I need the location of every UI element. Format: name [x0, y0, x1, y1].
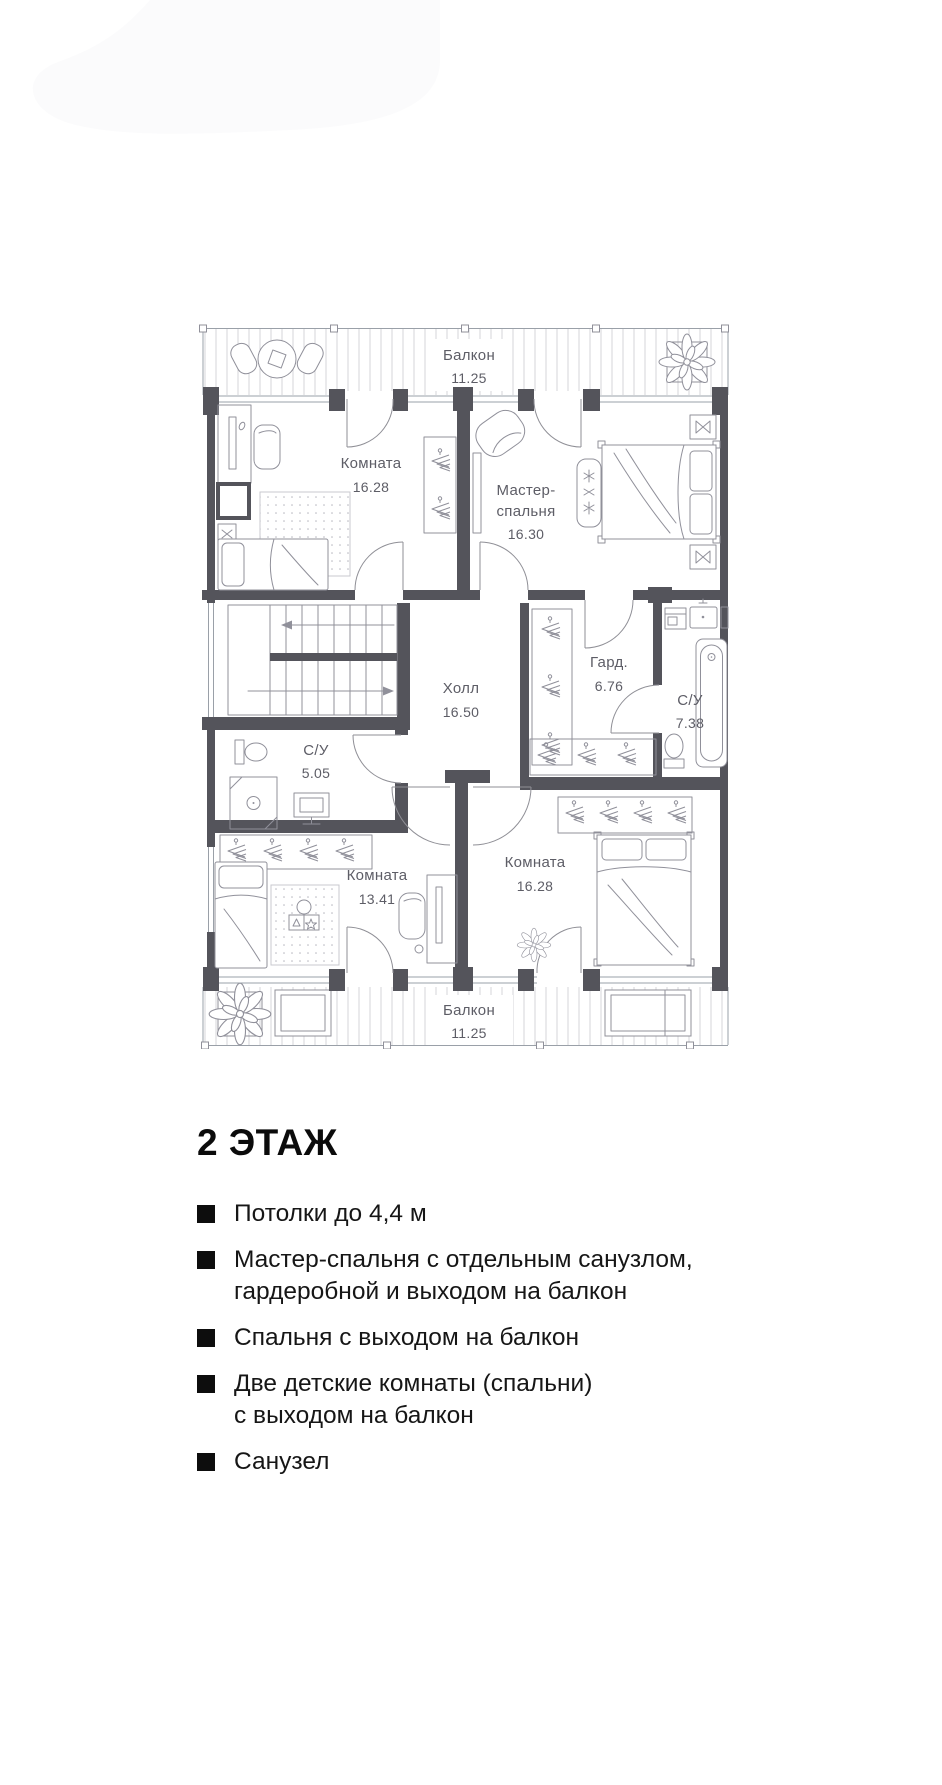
sink-icon: [294, 793, 329, 824]
room-top-left-label: Комната: [341, 455, 402, 472]
balcony-lounger-right: [605, 990, 691, 1036]
bullet-square: [197, 1329, 215, 1347]
wardrobe-label: Гард.: [590, 654, 628, 671]
bath-small-room: С/У 5.05: [230, 740, 330, 829]
closet-niche: [218, 484, 249, 518]
stairs: [228, 605, 397, 715]
room-bottom-left-furniture: Комната 13.41: [215, 835, 457, 968]
bed-icon: [594, 832, 694, 966]
washer-icon: [665, 608, 686, 629]
feature-item: Две детские комнаты (спальни)с выходом н…: [197, 1368, 717, 1432]
balcony-bottom: Балкон 11.25: [202, 983, 729, 1049]
room-top-left-area: 16.28: [353, 479, 390, 495]
floor-title: 2 ЭТАЖ: [197, 1122, 338, 1164]
bullet-square: [197, 1205, 215, 1223]
bath-master-room: С/У 7.38: [664, 599, 728, 768]
bullet-square: [197, 1251, 215, 1269]
feature-text: Потолки до 4,4 м: [234, 1198, 427, 1230]
master-label-1: Мастер-: [497, 482, 556, 499]
feature-text: Спальня с выходом на балкон: [234, 1322, 579, 1354]
bullet-square: [197, 1453, 215, 1471]
armchair-icon: [470, 404, 531, 462]
hall-labels: Холл 16.50: [443, 680, 480, 720]
feature-item: Мастер-спальня с отдельным санузлом,гард…: [197, 1244, 717, 1308]
balcony-top-label: Балкон: [443, 347, 495, 364]
plant-icon: [659, 334, 715, 390]
desk-icon: [399, 875, 457, 963]
master-bed-icon: [598, 441, 720, 543]
plant-icon: [517, 928, 551, 962]
master-furniture: Мастер- спальня 16.30: [470, 404, 720, 569]
bath-small-label: С/У: [303, 742, 329, 759]
room-bottom-left-label: Комната: [347, 867, 408, 884]
nightstand-icon: [690, 545, 716, 569]
master-label-2: спальня: [496, 503, 555, 520]
room-bottom-left-area: 13.41: [359, 891, 396, 907]
desk-icon: [218, 405, 280, 483]
rack: [558, 797, 692, 833]
page: Балкон 11.25: [0, 0, 942, 1785]
bath-master-area: 7.38: [676, 715, 704, 731]
feature-item: Спальня с выходом на балкон: [197, 1322, 717, 1354]
balcony-bottom-label: Балкон: [443, 1002, 495, 1019]
balcony-top: Балкон 11.25: [200, 325, 729, 395]
wardrobe-hangers: [424, 437, 456, 533]
wardrobe-area: 6.76: [595, 678, 623, 694]
bed-icon: [215, 862, 267, 968]
feature-item: Санузел: [197, 1446, 717, 1478]
room-bottom-right-furniture: Комната 16.28: [505, 797, 694, 966]
hall-label: Холл: [443, 680, 480, 697]
room-top-left-furniture: Комната 16.28: [218, 405, 456, 590]
shoe-rack: [530, 739, 656, 775]
bench-icon: [577, 459, 601, 527]
master-area: 16.30: [508, 526, 545, 542]
balcony-bottom-area: 11.25: [451, 1025, 487, 1041]
feature-text: Мастер-спальня с отдельным санузлом,: [234, 1244, 693, 1276]
feature-item: Потолки до 4,4 м: [197, 1198, 717, 1230]
background-blob: [0, 0, 440, 170]
feature-text: Две детские комнаты (спальни): [234, 1368, 592, 1400]
wardrobe-room: Гард. 6.76: [530, 609, 656, 775]
plant-icon: [209, 983, 271, 1045]
bath-small-area: 5.05: [302, 765, 330, 781]
room-bottom-right-label: Комната: [505, 854, 566, 871]
balcony-table-set: [228, 340, 327, 378]
nightstand-icon: [690, 415, 716, 439]
toilet-icon: [235, 740, 267, 764]
feature-text: Санузел: [234, 1446, 329, 1478]
bullet-square: [197, 1375, 215, 1393]
balcony-top-area: 11.25: [451, 370, 487, 386]
feature-list: Потолки до 4,4 м Мастер-спальня с отдель…: [197, 1198, 717, 1492]
room-bottom-right-area: 16.28: [517, 878, 554, 894]
bath-master-label: С/У: [677, 692, 703, 709]
toilet-icon: [664, 734, 684, 768]
floor-plan: Балкон 11.25: [178, 287, 730, 1049]
balcony-lounger-left: [275, 990, 331, 1036]
bed-icon: [218, 539, 328, 590]
mirror-icon: [473, 453, 481, 533]
hall-area: 16.50: [443, 704, 480, 720]
